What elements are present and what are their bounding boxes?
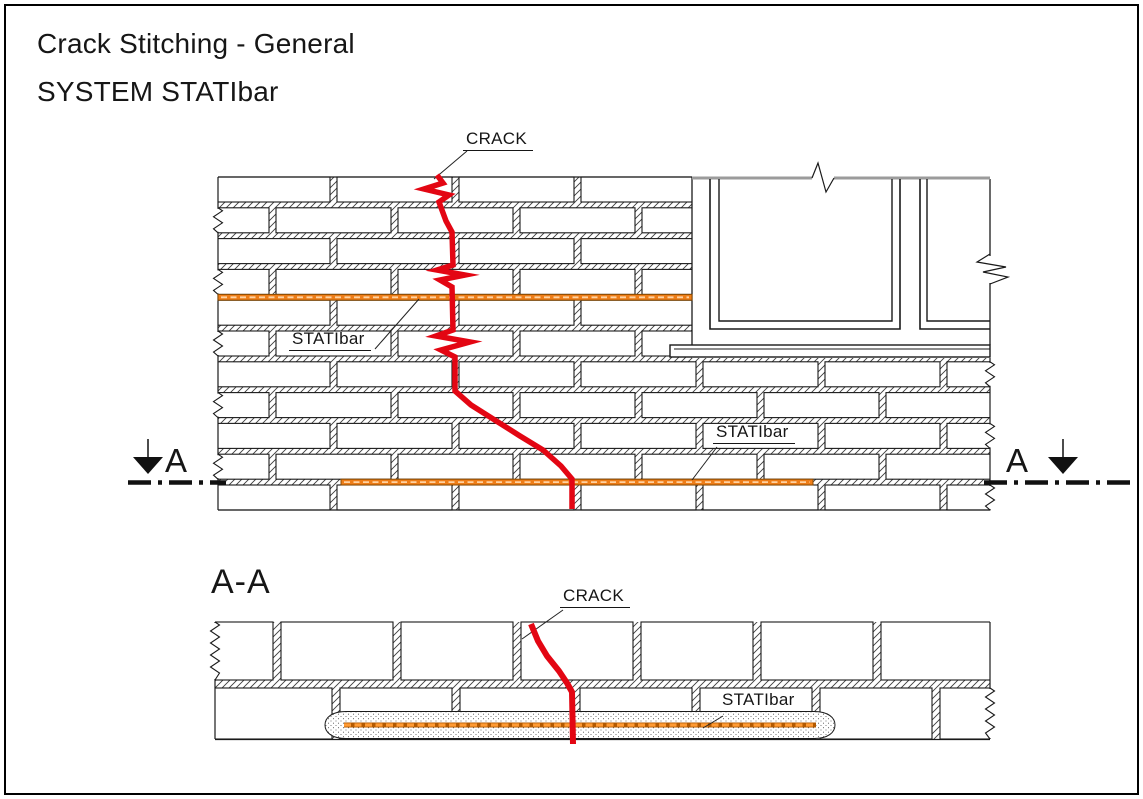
window [692, 163, 1008, 345]
crack-label-section: CRACK [560, 587, 630, 608]
statibar-bar-2 [341, 479, 813, 485]
section-arrow-left [133, 457, 163, 474]
page-title-line1: Crack Stitching - General [37, 28, 355, 60]
statibar-label-2: STATIbar [713, 423, 795, 444]
statibar-label-section: STATIbar [719, 691, 801, 712]
section-arrow-right [1048, 457, 1078, 474]
statibar-label-1: STATIbar [289, 330, 371, 351]
crack-label-upper: CRACK [463, 130, 533, 151]
mortar-bed [325, 712, 835, 739]
section-letter-left: A [165, 442, 187, 480]
section-marker-left [133, 439, 163, 474]
window-frame-right-inner [927, 179, 990, 321]
window-frame-right-outer [920, 179, 990, 329]
drawing-sheet: Crack Stitching - General SYSTEM STATIba… [0, 0, 1143, 799]
section-view [41, 610, 1143, 744]
crack-stitching-drawing [0, 0, 1143, 799]
section-letter-right: A [1006, 442, 1028, 480]
section-marker-right [1048, 439, 1078, 474]
page-title-line2: SYSTEM STATIbar [37, 76, 279, 108]
window-sill [670, 345, 990, 357]
window-frame-left-inner [719, 179, 892, 321]
section-title: A-A [211, 563, 271, 602]
window-frame-left-outer [710, 179, 900, 329]
